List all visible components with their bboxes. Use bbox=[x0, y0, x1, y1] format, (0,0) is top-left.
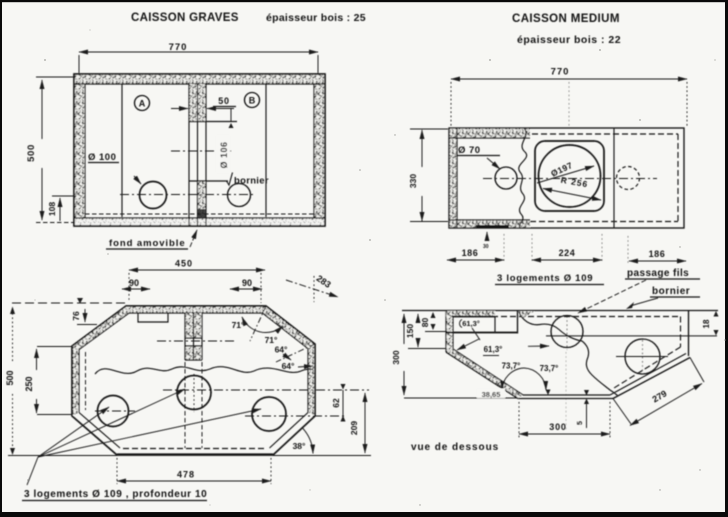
svg-text:B: B bbox=[249, 96, 256, 106]
svg-text:224: 224 bbox=[559, 248, 576, 258]
svg-text:5: 5 bbox=[577, 421, 584, 425]
svg-text:61,3°: 61,3° bbox=[462, 319, 480, 328]
svg-text:Ø 100: Ø 100 bbox=[88, 152, 116, 163]
svg-text:300: 300 bbox=[391, 350, 401, 364]
svg-text:209: 209 bbox=[349, 421, 359, 435]
svg-text:770: 770 bbox=[551, 67, 570, 78]
svg-text:500: 500 bbox=[26, 144, 37, 162]
svg-text:30: 30 bbox=[483, 244, 489, 250]
svg-text:71°: 71° bbox=[232, 320, 245, 330]
svg-text:Ø 106: Ø 106 bbox=[219, 141, 229, 168]
svg-text:vue de dessous: vue de dessous bbox=[411, 442, 499, 453]
svg-text:38°: 38° bbox=[293, 441, 306, 451]
svg-text:71°: 71° bbox=[265, 335, 278, 345]
svg-text:CAISSON GRAVES: CAISSON GRAVES bbox=[131, 12, 241, 24]
svg-text:73,7°: 73,7° bbox=[502, 362, 521, 371]
svg-text:478: 478 bbox=[177, 470, 195, 480]
svg-text:186: 186 bbox=[462, 248, 479, 258]
svg-text:90: 90 bbox=[129, 278, 139, 288]
svg-text:50: 50 bbox=[218, 96, 230, 106]
svg-text:épaisseur bois : 22: épaisseur bois : 22 bbox=[517, 34, 621, 46]
svg-text:épaisseur bois : 25: épaisseur bois : 25 bbox=[266, 12, 366, 24]
svg-text:38,65: 38,65 bbox=[482, 390, 501, 399]
svg-text:330: 330 bbox=[408, 174, 418, 188]
svg-text:250: 250 bbox=[24, 376, 34, 391]
svg-text:bornier: bornier bbox=[652, 286, 690, 297]
svg-text:90: 90 bbox=[242, 278, 252, 288]
svg-text:A: A bbox=[139, 99, 146, 109]
svg-text:80: 80 bbox=[420, 318, 430, 328]
svg-text:3 logements Ø 109 , profonde: 3 logements Ø 109 , profondeur 10 bbox=[24, 489, 207, 500]
svg-text:61,3°: 61,3° bbox=[484, 345, 503, 354]
svg-text:300: 300 bbox=[549, 422, 566, 432]
svg-text:500: 500 bbox=[5, 370, 15, 385]
svg-text:fond amovible: fond amovible bbox=[109, 238, 185, 249]
svg-text:76: 76 bbox=[71, 311, 81, 321]
svg-text:450: 450 bbox=[175, 259, 193, 269]
svg-text:18: 18 bbox=[702, 319, 711, 328]
svg-text:64°: 64° bbox=[282, 361, 295, 371]
svg-text:73,7°: 73,7° bbox=[540, 364, 559, 373]
svg-text:64°: 64° bbox=[275, 345, 288, 355]
svg-text:108: 108 bbox=[47, 202, 57, 216]
svg-text:186: 186 bbox=[649, 249, 666, 259]
svg-text:passage fils: passage fils bbox=[627, 268, 689, 279]
svg-text:150: 150 bbox=[405, 324, 415, 338]
svg-text:62: 62 bbox=[331, 398, 341, 408]
svg-text:CAISSON MEDIUM: CAISSON MEDIUM bbox=[512, 13, 622, 25]
svg-text:Ø 70: Ø 70 bbox=[458, 145, 481, 156]
svg-text:bornier: bornier bbox=[234, 176, 269, 187]
svg-text:770: 770 bbox=[169, 42, 188, 53]
svg-text:3 logements Ø 109: 3 logements Ø 109 bbox=[497, 273, 593, 284]
